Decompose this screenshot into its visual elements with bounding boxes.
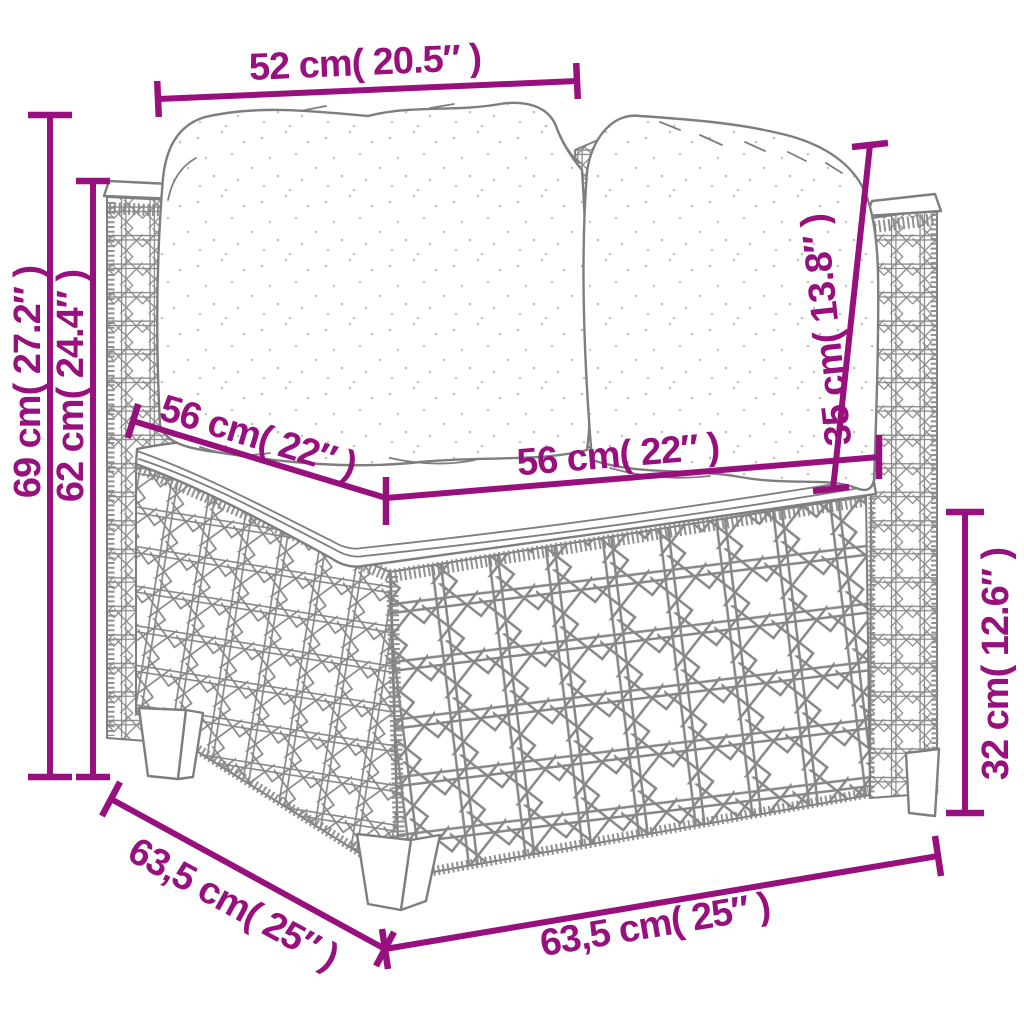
dimension-tick: [813, 487, 849, 491]
right-corner-post: [870, 209, 937, 798]
dimension-tick: [935, 836, 941, 876]
dimension-tick: [102, 782, 120, 816]
right-corner-post-cap: [866, 194, 941, 216]
dimension-tick: [576, 63, 578, 99]
dimension-back-height: 62 cm( 24.4″ ): [50, 181, 110, 777]
dimension-label: 63,5 cm( 25″ ): [121, 830, 345, 978]
corner-sofa-dimension-drawing: 52 cm( 20.5″ ) 69 cm( 27.2″ ) 62 cm( 24.…: [0, 0, 1024, 1024]
dimension-tick: [157, 81, 159, 117]
right-leg-front: [906, 749, 939, 816]
dimension-label: 52 cm( 20.5″ ): [248, 37, 482, 89]
dimension-base-height: 32 cm( 12.6″ ): [946, 512, 1017, 813]
dimension-label: 69 cm( 27.2″ ): [7, 266, 49, 498]
base-corner-braid: [392, 576, 400, 876]
dimension-label: 62 cm( 24.4″ ): [50, 270, 92, 502]
dimension-tick: [382, 929, 388, 969]
dimension-tick: [852, 143, 888, 147]
dimension-label: 63,5 cm( 25″ ): [537, 885, 773, 965]
dimension-label: 32 cm( 12.6″ ): [975, 548, 1017, 780]
dimension-diagram: 52 cm( 20.5″ ) 69 cm( 27.2″ ) 62 cm( 24.…: [0, 0, 1024, 1024]
